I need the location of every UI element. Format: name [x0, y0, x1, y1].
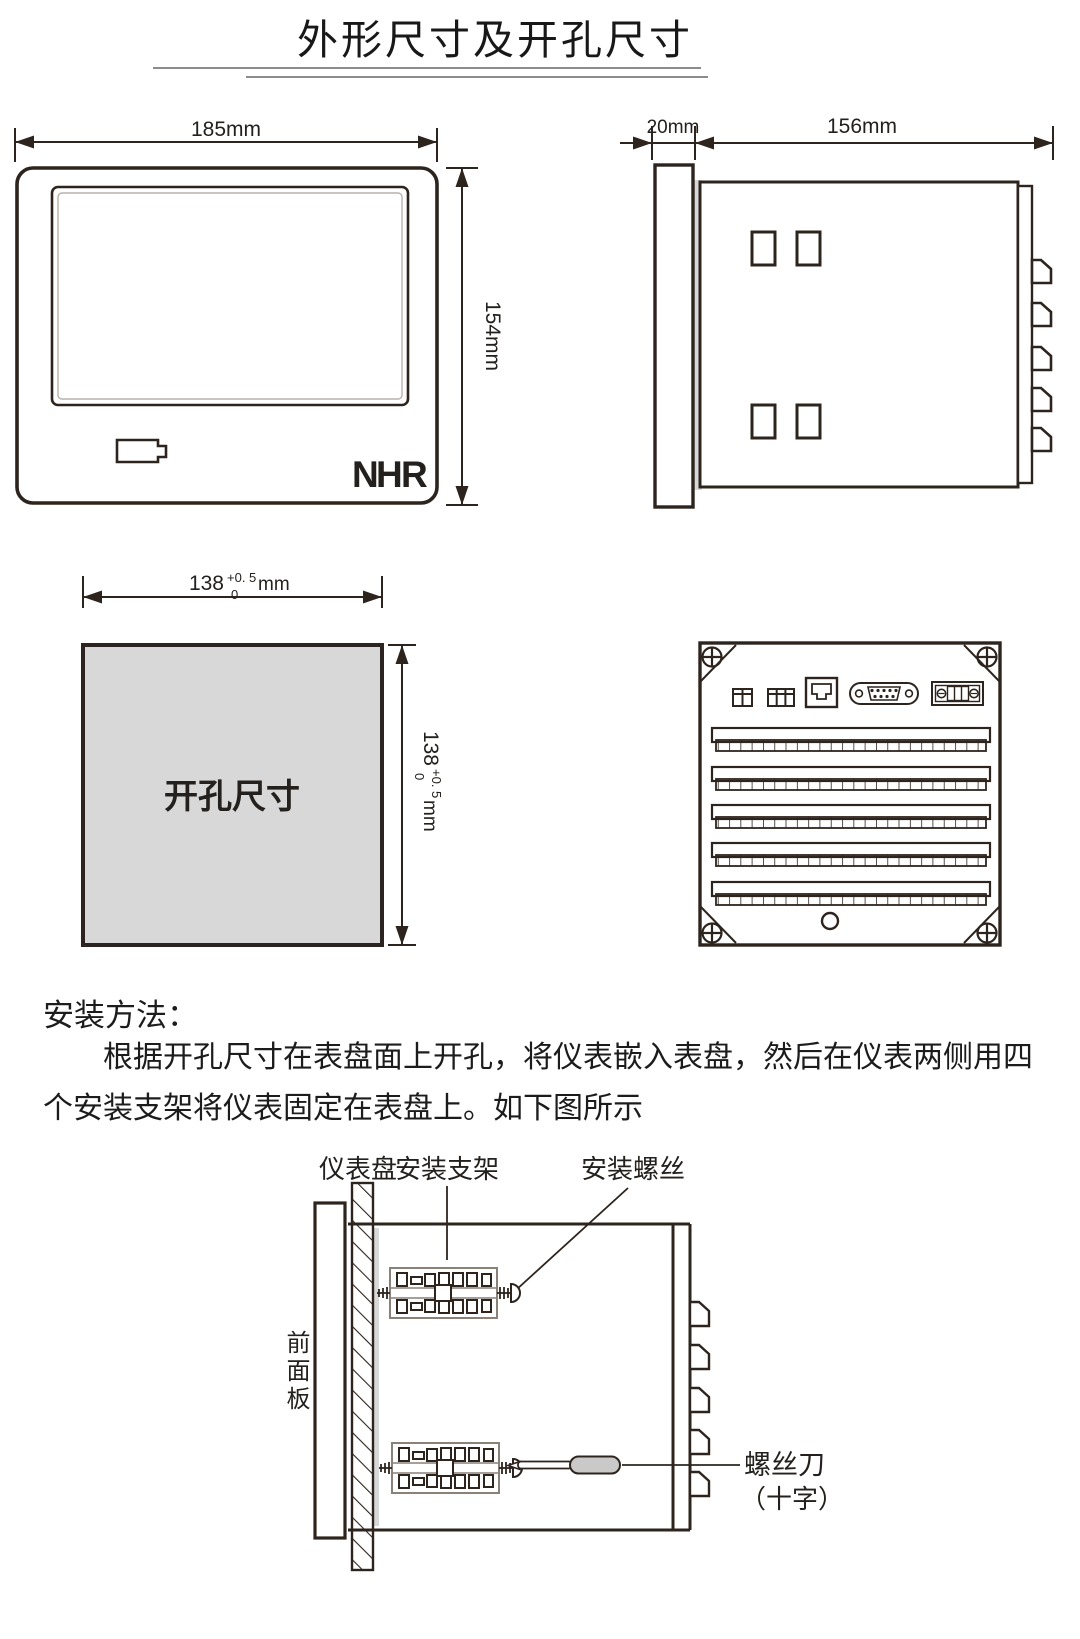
title-underline-1: [153, 67, 701, 69]
svg-text:138: 138: [189, 572, 224, 595]
svg-text:+0. 5: +0. 5: [429, 769, 444, 798]
terminal-strip: [712, 767, 990, 790]
cutout-height-dimension: [388, 645, 416, 945]
rj45-port-icon: [806, 678, 837, 707]
document-page: 外形尺寸及开孔尺寸 185mm N H R: [0, 0, 1080, 1639]
side-view-diagram: 20mm 156mm: [600, 100, 1080, 520]
rear-view-diagram: [650, 600, 1080, 980]
terminal-strip: [712, 805, 990, 828]
cutout-label: 开孔尺寸: [164, 778, 300, 816]
rear-mount-hole: [822, 913, 838, 929]
front-screen: [52, 187, 408, 405]
usb-slot: [117, 440, 166, 462]
svg-text:mm: mm: [258, 574, 290, 595]
install-method-heading: 安装方法：: [43, 990, 198, 1035]
side-bezel-dim-label: 20mm: [647, 117, 700, 138]
install-method-paragraph: 根据开孔尺寸在表盘面上开孔，将仪表嵌入表盘，然后在仪表两侧用四个安装支架将仪表固…: [43, 1032, 1049, 1134]
side-body: [655, 165, 1051, 507]
svg-text:138: 138: [419, 731, 442, 766]
nhr-logo-r: R: [401, 454, 428, 495]
terminal-strip: [712, 882, 990, 905]
side-depth-dim-label: 156mm: [827, 115, 897, 138]
instrument-panel-wall: [352, 1183, 373, 1570]
front-height-dimension: [446, 168, 478, 505]
cutout-height-dim-label: 138 +0. 5 0 mm: [412, 731, 444, 832]
front-view-diagram: 185mm N H R 154mm: [0, 100, 520, 520]
mounting-bracket-bottom: [379, 1443, 522, 1493]
cutout-diagram: 138 +0. 5 0 mm 开孔尺寸 138 +0. 5 0 mm: [40, 540, 510, 960]
page-title: 外形尺寸及开孔尺寸: [0, 6, 990, 66]
nhr-logo-n: N: [352, 454, 379, 495]
terminal-3pin-icon: [768, 689, 794, 706]
terminal-strip: [712, 728, 990, 751]
front-width-dim-label: 185mm: [191, 118, 261, 141]
nhr-logo: N H R: [352, 454, 428, 495]
front-panel-shape: [315, 1203, 345, 1538]
screwdriver-label: 螺丝刀: [744, 1450, 825, 1480]
terminal-strip: [712, 843, 990, 866]
mounting-bracket-top: [377, 1268, 520, 1318]
svg-text:0: 0: [231, 587, 238, 602]
front-height-dim-label: 154mm: [481, 301, 504, 371]
db9-port-icon: [850, 683, 918, 704]
front-panel-label: 前面板: [278, 1330, 313, 1414]
svg-text:mm: mm: [419, 800, 440, 832]
screwdriver-type-label: （十字）: [740, 1485, 844, 1514]
svg-text:+0. 5: +0. 5: [227, 570, 256, 585]
front-bezel-outline: [17, 168, 437, 503]
terminal-2pin-icon: [733, 689, 752, 706]
installation-diagram: 仪表盘 安装支架 安装螺丝: [250, 1140, 870, 1620]
mount-screw-label: 安装螺丝: [581, 1155, 685, 1184]
nhr-logo-h: H: [376, 454, 403, 495]
side-terminal-hooks: [1032, 260, 1051, 451]
body-terminal-hooks: [690, 1302, 709, 1496]
title-underline-2: [246, 76, 708, 78]
svg-text:0: 0: [412, 773, 427, 780]
power-terminal-icon: [932, 682, 983, 705]
bracket-label: 安装支架: [395, 1155, 499, 1184]
screwdriver-icon: [508, 1457, 620, 1474]
panel-label: 仪表盘: [319, 1155, 397, 1184]
